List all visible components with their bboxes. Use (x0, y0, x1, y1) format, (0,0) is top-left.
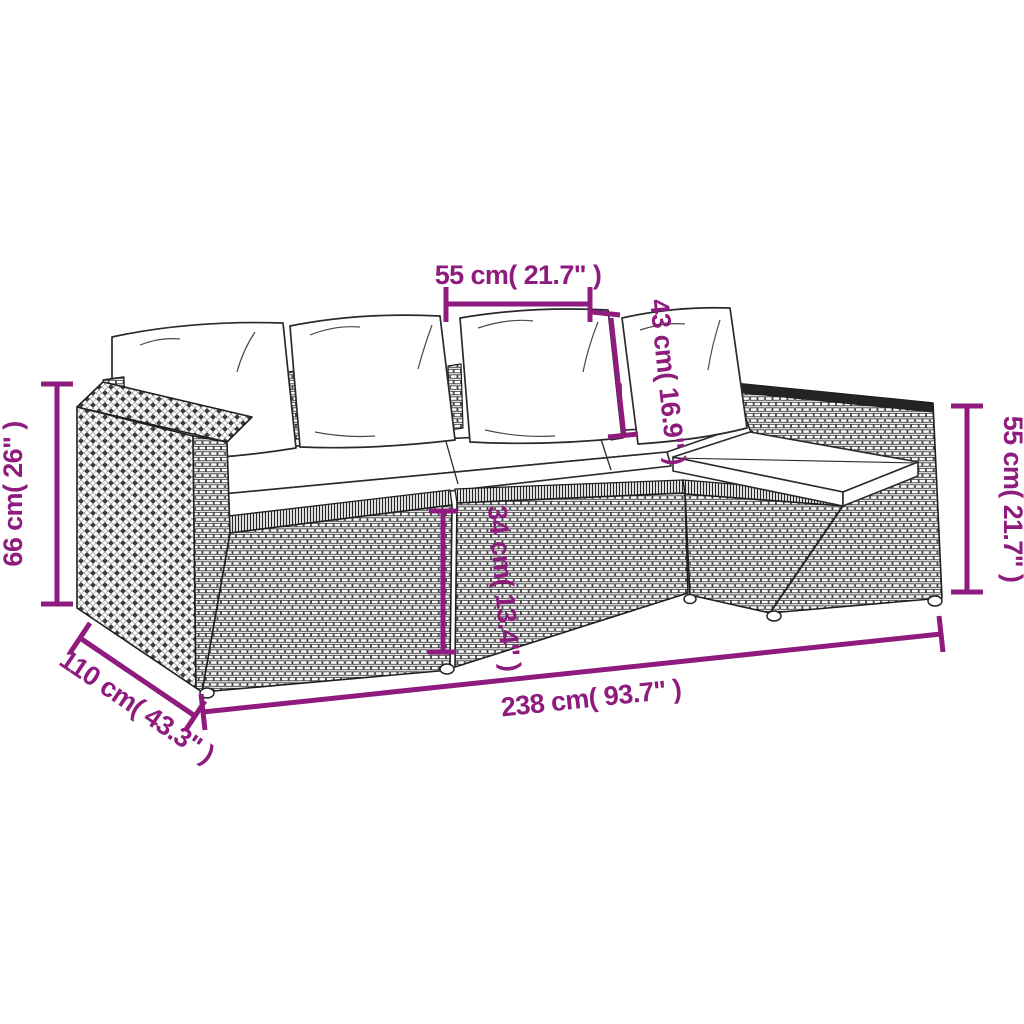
back-pillow-3 (460, 309, 622, 443)
dim-side-height-label: 55 cm( 21.7" ) (998, 416, 1024, 583)
dim-seat-width-label: 55 cm( 21.7" ) (435, 260, 602, 290)
dimension-diagram: 55 cm( 21.7" ) 43 cm( 16.9" ) 66 cm( 26"… (0, 0, 1024, 1024)
dim-armrest-height-label: 66 cm( 26" ) (0, 421, 28, 566)
back-pillow-2 (290, 315, 455, 448)
base-left-module (202, 490, 452, 692)
dim-side-height: 55 cm( 21.7" ) (951, 406, 1024, 592)
diagram-page: 55 cm( 21.7" ) 43 cm( 16.9" ) 66 cm( 26"… (0, 0, 1024, 1024)
dim-total-length-label: 238 cm( 93.7" ) (500, 674, 683, 723)
dim-armrest-height: 66 cm( 26" ) (0, 384, 73, 604)
